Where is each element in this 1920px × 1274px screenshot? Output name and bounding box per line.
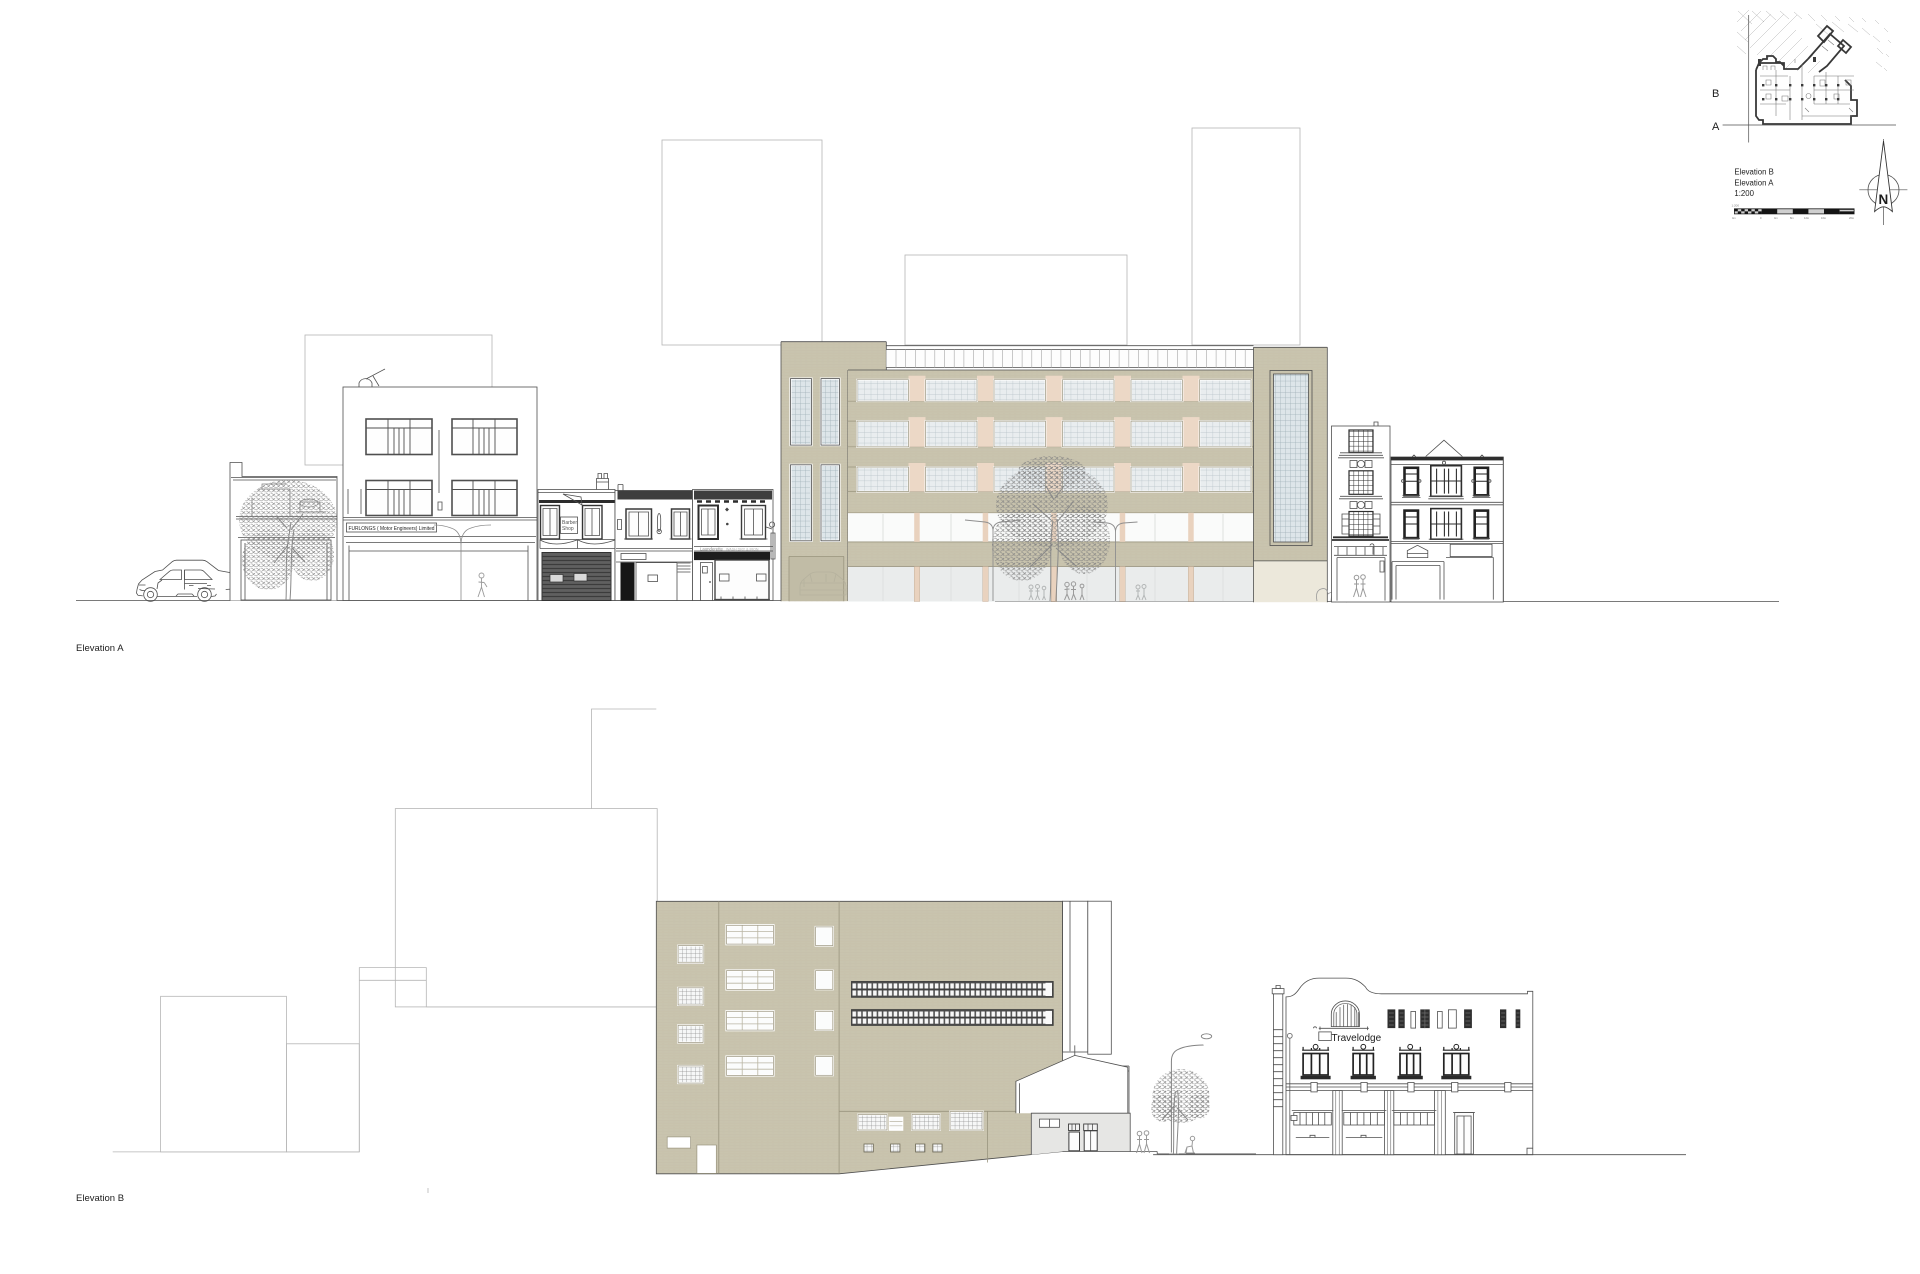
svg-text:Elevation A: Elevation A xyxy=(76,643,124,654)
svg-text:N: N xyxy=(1879,192,1889,207)
svg-text:8m: 8m xyxy=(1790,216,1794,220)
svg-text:Elevation A: Elevation A xyxy=(1734,178,1774,187)
svg-text:A: A xyxy=(1712,121,1720,133)
svg-text:WASH DRY & IRON: WASH DRY & IRON xyxy=(726,547,759,551)
svg-text:20m: 20m xyxy=(1849,216,1854,220)
svg-text:FURLONGS ( Motor Engineers) Li: FURLONGS ( Motor Engineers) Limited xyxy=(349,526,435,532)
svg-text:1:200: 1:200 xyxy=(1734,189,1754,198)
svg-text:Travelodge: Travelodge xyxy=(1332,1033,1382,1044)
svg-text:Shop: Shop xyxy=(562,526,574,532)
svg-text:4m: 4m xyxy=(1774,216,1778,220)
svg-text:Elevation B: Elevation B xyxy=(1734,167,1773,176)
svg-text:16m: 16m xyxy=(1821,216,1826,220)
svg-text:Launderette: Launderette xyxy=(700,546,724,551)
svg-text:1:200: 1:200 xyxy=(1732,204,1740,208)
svg-text:4m: 4m xyxy=(1732,216,1736,220)
svg-text:12m: 12m xyxy=(1804,216,1809,220)
svg-text:B: B xyxy=(1712,88,1719,100)
svg-text:Elevation B: Elevation B xyxy=(76,1193,124,1204)
